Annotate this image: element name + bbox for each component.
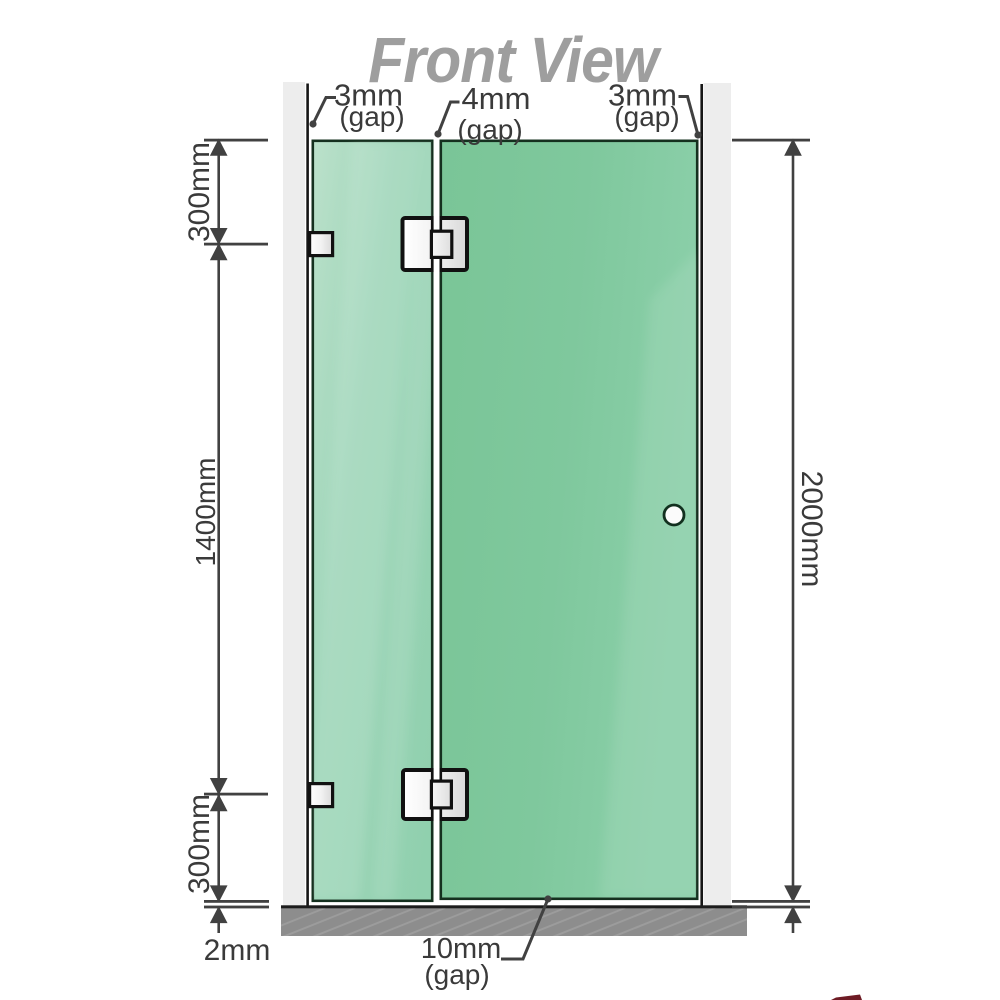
svg-text:300mm: 300mm [183, 142, 216, 242]
svg-text:(gap): (gap) [457, 114, 522, 145]
svg-text:(gap): (gap) [424, 959, 489, 990]
svg-text:300mm: 300mm [183, 794, 216, 894]
svg-text:2000mm: 2000mm [795, 471, 828, 588]
svg-text:4mm: 4mm [462, 81, 531, 116]
svg-text:(gap): (gap) [614, 101, 679, 132]
svg-text:1400mm: 1400mm [190, 458, 221, 567]
svg-text:2mm: 2mm [204, 934, 271, 967]
svg-text:(gap): (gap) [339, 101, 404, 132]
